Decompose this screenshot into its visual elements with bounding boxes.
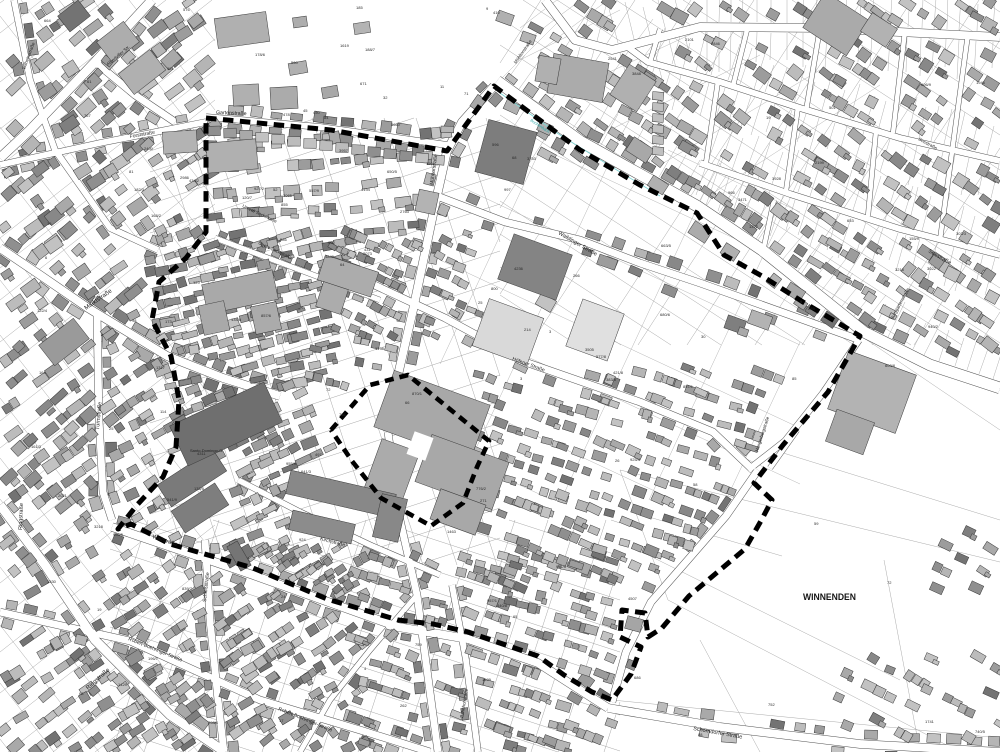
svg-text:4849: 4849 [325,254,335,259]
svg-text:65: 65 [513,614,518,619]
svg-text:26: 26 [615,458,620,463]
svg-text:298/4: 298/4 [208,720,219,725]
svg-text:653: 653 [847,218,854,223]
svg-text:Santo-Domingo-G.: Santo-Domingo-G. [190,448,223,453]
svg-text:767: 767 [84,113,91,118]
svg-text:560: 560 [291,60,298,65]
svg-text:155/9: 155/9 [909,236,920,241]
svg-text:122/4: 122/4 [37,308,48,313]
svg-text:596: 596 [492,142,499,147]
svg-text:4507: 4507 [628,596,638,601]
svg-text:855: 855 [281,202,288,207]
svg-text:603/8: 603/8 [885,363,896,368]
svg-text:2400: 2400 [144,146,154,151]
svg-text:3218: 3218 [895,267,905,272]
svg-text:1530: 1530 [47,579,57,584]
svg-text:3022: 3022 [927,266,937,271]
svg-text:752: 752 [768,702,775,707]
svg-text:68: 68 [79,691,84,696]
svg-text:2073: 2073 [363,251,373,256]
svg-text:30: 30 [701,334,706,339]
svg-text:58: 58 [693,482,698,487]
svg-text:168/2: 168/2 [151,213,162,218]
svg-text:966: 966 [728,190,735,195]
svg-text:52: 52 [273,187,278,192]
svg-text:182/3: 182/3 [134,187,145,192]
svg-text:Ringstraße: Ringstraße [18,503,25,530]
svg-text:81: 81 [129,169,134,174]
svg-text:940/2: 940/2 [928,324,939,329]
svg-text:1501: 1501 [426,161,436,166]
svg-text:997: 997 [504,187,511,192]
svg-text:289: 289 [808,306,815,311]
svg-text:4194: 4194 [361,187,371,192]
svg-text:576: 576 [183,7,190,12]
svg-text:164: 164 [39,370,46,375]
svg-text:434/2: 434/2 [189,178,200,183]
svg-text:902: 902 [328,240,335,245]
svg-text:541/9: 541/9 [167,497,178,502]
svg-text:957/1: 957/1 [487,598,498,603]
svg-text:2541: 2541 [608,56,618,61]
svg-text:72: 72 [887,580,892,585]
svg-text:66: 66 [405,400,410,405]
svg-text:19: 19 [766,115,771,120]
svg-text:557/9: 557/9 [309,188,320,193]
svg-text:776/2: 776/2 [476,486,487,491]
svg-text:650/5: 650/5 [387,169,398,174]
svg-text:2199: 2199 [815,160,825,165]
svg-text:25: 25 [109,426,114,431]
svg-text:991: 991 [167,66,174,71]
svg-text:908/5: 908/5 [113,532,124,537]
svg-text:2021: 2021 [58,493,68,498]
svg-text:2763: 2763 [400,209,410,214]
svg-text:1946: 1946 [976,80,986,85]
svg-text:421/8: 421/8 [613,370,624,375]
svg-text:1619: 1619 [340,43,350,48]
svg-text:32: 32 [383,95,388,100]
svg-text:61: 61 [87,79,92,84]
svg-text:2846: 2846 [711,41,721,46]
svg-text:19: 19 [97,607,102,612]
svg-text:740/5: 740/5 [975,729,986,734]
svg-text:3471: 3471 [738,197,748,202]
svg-text:303/3: 303/3 [956,231,967,236]
svg-text:3218: 3218 [94,524,104,529]
svg-text:2101: 2101 [685,37,695,42]
svg-text:671: 671 [360,81,367,86]
svg-text:16: 16 [47,221,52,226]
svg-text:925/4: 925/4 [630,457,641,462]
svg-text:120/7: 120/7 [242,195,253,200]
svg-text:132/5: 132/5 [194,486,205,491]
svg-text:478: 478 [283,112,290,117]
svg-text:3957: 3957 [339,148,349,153]
svg-text:88: 88 [698,732,703,737]
svg-text:59: 59 [814,521,819,526]
svg-text:1372: 1372 [749,224,759,229]
svg-text:214: 214 [524,327,531,332]
svg-text:114: 114 [160,409,167,414]
svg-text:71: 71 [464,91,469,96]
svg-text:185: 185 [356,5,363,10]
svg-text:1798: 1798 [375,346,385,351]
svg-text:Gartenstraße: Gartenstraße [216,110,247,117]
svg-text:955/9: 955/9 [286,461,297,466]
svg-text:2065: 2065 [283,193,293,198]
svg-text:68: 68 [512,155,517,160]
svg-text:664: 664 [44,18,51,23]
svg-text:1699: 1699 [482,677,492,682]
svg-text:98: 98 [132,318,137,323]
svg-text:3848: 3848 [632,71,642,76]
svg-text:WINNENDEN: WINNENDEN [803,592,856,603]
svg-text:586: 586 [280,237,287,242]
svg-text:178/6: 178/6 [255,52,266,57]
svg-text:4236: 4236 [514,266,524,271]
svg-text:641/3: 641/3 [301,469,312,474]
svg-text:924: 924 [299,537,306,542]
svg-text:196/7: 196/7 [148,656,159,661]
svg-text:941/5: 941/5 [556,564,567,569]
svg-text:262: 262 [400,703,407,708]
svg-text:64: 64 [340,262,345,267]
svg-text:17: 17 [279,718,284,723]
svg-text:72: 72 [326,387,331,392]
svg-text:24: 24 [281,594,286,599]
svg-text:663/5: 663/5 [661,243,672,248]
svg-text:84: 84 [324,115,329,120]
svg-text:3660: 3660 [391,122,401,127]
svg-text:450: 450 [313,110,320,115]
svg-text:736: 736 [339,412,346,417]
svg-text:85: 85 [792,376,797,381]
svg-text:927/2: 927/2 [254,186,265,191]
svg-text:161/3: 161/3 [31,444,42,449]
svg-text:501: 501 [829,105,836,110]
svg-text:134/6: 134/6 [231,317,242,322]
svg-text:857/6: 857/6 [261,313,272,318]
svg-text:1429: 1429 [118,682,128,687]
svg-text:800: 800 [491,286,498,291]
svg-text:99: 99 [251,208,256,213]
svg-text:606/9: 606/9 [921,82,932,87]
svg-text:759: 759 [415,642,422,647]
svg-text:271: 271 [480,498,487,503]
svg-text:497: 497 [315,452,322,457]
svg-text:3505: 3505 [585,347,595,352]
svg-text:173: 173 [165,319,172,324]
svg-text:3753: 3753 [527,156,537,161]
svg-text:188/7: 188/7 [365,47,376,52]
svg-text:266: 266 [573,273,580,278]
svg-text:870/1: 870/1 [412,391,423,396]
svg-text:25: 25 [478,300,483,305]
svg-text:1317: 1317 [156,365,166,370]
svg-text:1741: 1741 [925,719,935,724]
svg-text:383/8: 383/8 [606,377,617,382]
svg-text:129: 129 [193,280,200,285]
svg-text:440/8: 440/8 [497,603,508,608]
svg-text:857/1: 857/1 [683,384,694,389]
svg-text:410: 410 [493,10,500,15]
svg-text:577/8: 577/8 [596,354,607,359]
svg-text:680/6: 680/6 [660,312,671,317]
svg-text:3928: 3928 [772,176,782,181]
svg-text:45: 45 [303,108,308,113]
svg-text:1463: 1463 [447,529,457,534]
svg-text:839/7: 839/7 [182,586,193,591]
svg-text:4311: 4311 [197,451,206,456]
svg-text:686: 686 [634,675,641,680]
